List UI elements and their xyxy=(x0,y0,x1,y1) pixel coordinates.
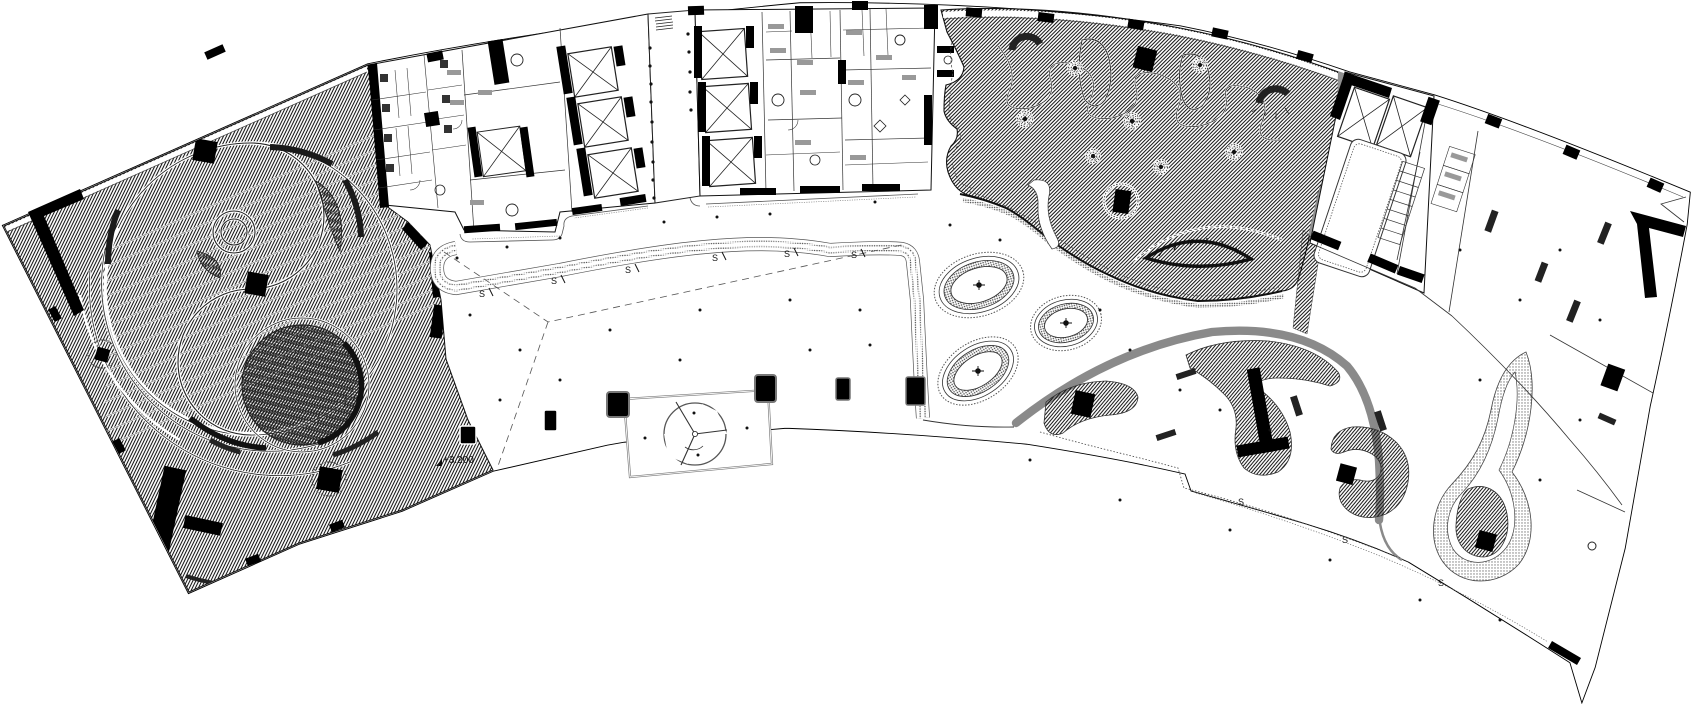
svg-text:+3.200: +3.200 xyxy=(443,455,474,466)
svg-text:S: S xyxy=(479,289,485,299)
svg-text:S: S xyxy=(1238,497,1244,507)
svg-text:S: S xyxy=(551,276,557,286)
svg-text:S: S xyxy=(625,265,631,275)
svg-text:S: S xyxy=(851,250,857,260)
svg-text:S: S xyxy=(1342,535,1348,545)
svg-text:S: S xyxy=(784,249,790,259)
svg-text:S: S xyxy=(712,253,718,263)
svg-text:S: S xyxy=(1438,578,1444,588)
